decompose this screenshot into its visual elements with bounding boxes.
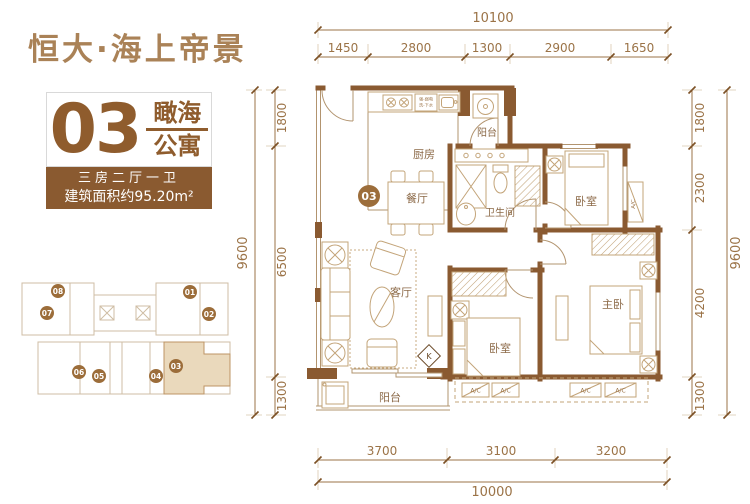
svg-text:2300: 2300	[693, 173, 707, 204]
dim-right-total: 9600	[729, 236, 744, 269]
dim-bottom-total: 10000	[471, 485, 512, 500]
unit-card-bar: 三房二厅一卫 建筑面积约95.20m²	[46, 167, 212, 209]
svg-text:3100: 3100	[486, 444, 517, 458]
svg-text:1450: 1450	[328, 41, 359, 55]
svg-text:6500: 6500	[275, 247, 289, 278]
area-text: 建筑面积约95.20m²	[46, 188, 212, 206]
washing-machine	[473, 94, 498, 118]
dimension-top: 10100 1450 2800 1300 2900 1650	[315, 11, 672, 64]
svg-text:2800: 2800	[401, 41, 432, 55]
svg-text:3200: 3200	[596, 444, 627, 458]
kitchen-note-2: 洗-下水	[419, 102, 434, 109]
balcony-bottom-items	[322, 382, 348, 408]
svg-text:A/C: A/C	[580, 388, 590, 395]
key-plan: 08 07 01 02 06 05 04 03	[22, 283, 230, 394]
label-dining: 餐厅	[406, 191, 428, 205]
unit-number: 03	[50, 95, 141, 165]
dim-top-total: 10100	[472, 11, 513, 26]
label-bedroom-mid: 卧室	[489, 341, 511, 355]
bedroom-mid-furniture	[451, 272, 520, 376]
svg-text:1800: 1800	[693, 103, 707, 134]
svg-text:3700: 3700	[367, 444, 398, 458]
label-balcony-top: 阳台	[477, 126, 497, 139]
floor-plan: 强-弱电 洗-下水	[307, 88, 660, 410]
kitchen-note-1: 强-弱电	[419, 96, 434, 103]
unit-card: 03 瞰海 公寓 三房二厅一卫 建筑面积约95.20m²	[46, 92, 212, 209]
svg-text:05: 05	[94, 372, 104, 381]
unit-name: 瞰海 公寓	[146, 100, 208, 159]
svg-text:1300: 1300	[275, 381, 289, 412]
svg-text:08: 08	[53, 287, 63, 296]
ac-label-right: A/C	[631, 199, 637, 209]
svg-text:K: K	[426, 352, 432, 361]
unit-badge: 03	[358, 185, 380, 207]
layout-text: 三房二厅一卫	[46, 170, 212, 188]
svg-text:06: 06	[74, 368, 84, 377]
label-balcony-bottom: 阳台	[379, 390, 401, 404]
label-kitchen: 厨房	[413, 148, 435, 161]
svg-text:1800: 1800	[275, 103, 289, 134]
project-title: 恒大·海上帝景	[28, 24, 247, 69]
label-master: 主卧	[602, 298, 624, 311]
svg-text:2900: 2900	[545, 41, 576, 55]
dim-left-total: 9600	[236, 236, 251, 269]
svg-text:1300: 1300	[693, 381, 707, 412]
label-living: 客厅	[390, 285, 412, 299]
svg-text:03: 03	[361, 190, 376, 203]
label-bathroom: 卫生间	[485, 206, 515, 219]
label-bedroom-top: 卧室	[575, 194, 597, 208]
door-symbol-k: K	[418, 345, 441, 368]
svg-text:1650: 1650	[624, 41, 655, 55]
unit-name-divider	[146, 128, 208, 131]
bedroom-top-furniture	[546, 151, 643, 225]
living-room-furniture	[321, 240, 442, 368]
dimension-left: 1800 6500 1300 9600	[236, 87, 289, 419]
svg-text:A/C: A/C	[500, 388, 510, 395]
svg-text:04: 04	[151, 372, 161, 381]
dimension-right: 1800 2300 4200 1300 9600	[682, 87, 744, 419]
svg-text:07: 07	[42, 309, 52, 318]
unit-name-top: 瞰海	[153, 100, 201, 126]
svg-text:01: 01	[185, 288, 195, 297]
unit-name-bottom: 公寓	[153, 133, 201, 159]
svg-text:A/C: A/C	[615, 388, 625, 395]
svg-text:03: 03	[171, 362, 181, 371]
kitchen	[368, 92, 460, 112]
svg-text:A/C: A/C	[470, 388, 480, 395]
svg-text:1300: 1300	[472, 41, 503, 55]
svg-text:4200: 4200	[693, 288, 707, 319]
floor-plan-sheet: 恒大·海上帝景 03 瞰海 公寓 三房二厅一卫 建筑面积约95.20m²	[0, 0, 750, 500]
dimension-bottom: 3700 3100 3200 10000	[315, 444, 671, 500]
floor-plan-canvas: 08 07 01 02 06 05 04 03 10100 1450	[0, 0, 750, 500]
unit-card-top: 03 瞰海 公寓	[46, 92, 212, 167]
svg-text:02: 02	[204, 310, 214, 319]
